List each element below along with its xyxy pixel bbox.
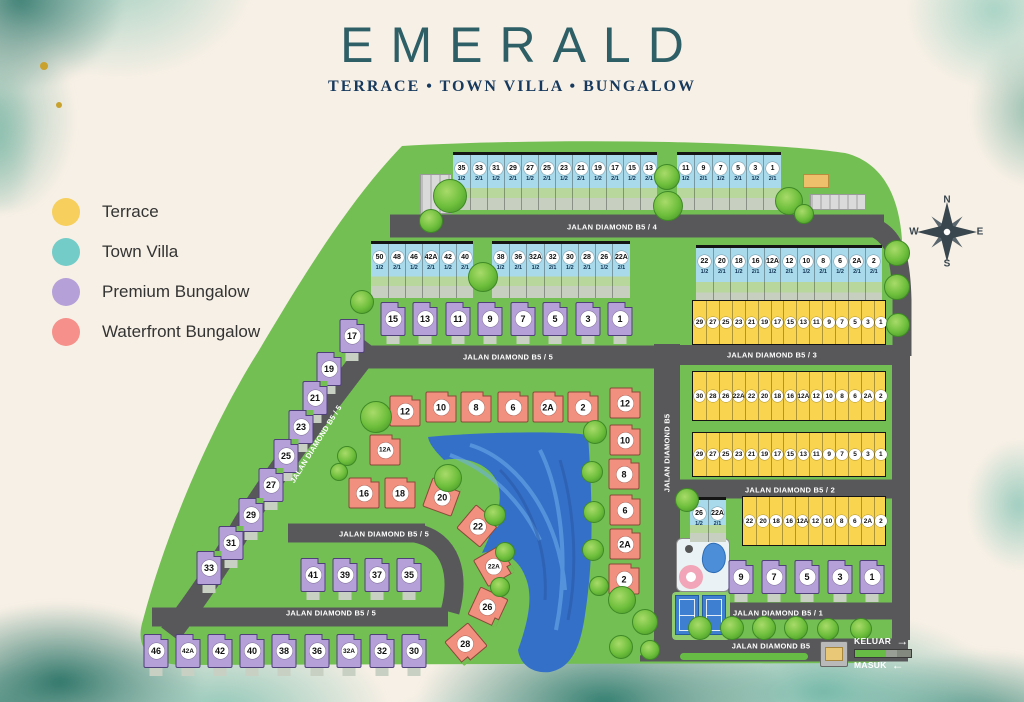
lot-number-badge: 19 [759,449,771,461]
lot-6[interactable]: 6 [848,497,861,545]
lot-16[interactable]: 162/1 [747,248,764,305]
lot-18[interactable]: 181/2 [730,248,747,305]
compass-west: W [909,227,918,238]
lot-38[interactable]: 38 [272,634,297,668]
lot-39[interactable]: 39 [333,558,358,592]
lot-9[interactable]: 9 [478,302,503,336]
roof-notch [411,395,421,401]
lot-3[interactable]: 31/2 [746,155,763,210]
lot-number-badge: 22A [733,390,745,402]
lot-36[interactable]: 362/1 [509,244,526,298]
lot-22A[interactable]: 22A2/1 [708,500,726,542]
lot-type-label: 1/2 [497,265,505,271]
lot-5[interactable]: 5 [848,433,861,476]
driveway [402,592,416,600]
lot-31[interactable]: 311/2 [487,155,504,210]
lot-9[interactable]: 9 [822,433,835,476]
lot-number-badge: 32 [374,643,390,659]
lot-11[interactable]: 11 [809,433,822,476]
lot-21[interactable]: 212/1 [572,155,589,210]
lot-number-badge: 33 [473,162,486,175]
lot-22[interactable]: 22 [745,372,758,420]
lot-type-label: 1/2 [526,176,534,182]
tree-icon [495,542,515,562]
lot-6[interactable]: 6 [610,495,641,526]
lot-number-badge: 10 [800,255,813,268]
lot-8[interactable]: 8 [461,392,492,423]
compass-east: E [977,227,984,238]
lot-26[interactable]: 26 [719,372,732,420]
lot-12[interactable]: 12 [610,388,641,419]
lot-number-badge: 2A [850,255,863,268]
lot-3[interactable]: 3 [576,302,601,336]
lot-number-badge: 12 [810,515,822,527]
lot-12[interactable]: 12 [809,372,822,420]
legend-color-dot [52,238,80,266]
lot-1[interactable]: 1 [860,560,885,594]
lot-7[interactable]: 71/2 [712,155,729,210]
lot-50[interactable]: 501/2 [371,244,388,298]
roof-notch [506,563,516,574]
tree-icon [581,461,603,483]
driveway [386,336,400,344]
lot-number-badge: 12A [766,255,779,268]
lot-number-badge: 10 [823,515,835,527]
lot-42[interactable]: 421/2 [439,244,456,298]
lot-number-badge: 35 [401,567,417,583]
lot-18[interactable]: 18 [771,372,784,420]
lot-number-badge: 10 [823,390,835,402]
lot-number-badge: 35 [455,162,468,175]
lot-22A[interactable]: 22A [732,372,745,420]
lot-28[interactable]: 282/1 [578,244,595,298]
roof-notch [193,634,201,640]
lot-number-badge: 5 [547,311,563,327]
lot-33[interactable]: 33 [197,551,222,585]
lot-6[interactable]: 61/2 [831,248,848,305]
lot-17[interactable]: 17 [771,433,784,476]
lot-number-badge: 20 [757,515,769,527]
lot-number-badge: 46 [148,643,164,659]
lot-2[interactable]: 22/1 [865,248,882,305]
lot-17[interactable]: 172/1 [606,155,623,210]
lot-30[interactable]: 30 [402,634,427,668]
driveway [245,668,259,676]
lot-16[interactable]: 16 [782,497,795,545]
lot-8[interactable]: 8 [835,497,848,545]
roof-notch [528,302,536,308]
terrace-row-4: 2220181612A1210862A2 [742,496,886,546]
lot-1[interactable]: 1 [874,301,887,344]
lot-5[interactable]: 52/1 [729,155,746,210]
lot-17[interactable]: 17 [771,301,784,344]
lot-25[interactable]: 25 [719,433,732,476]
tree-icon [583,420,607,444]
roof-notch [631,387,641,393]
tree-icon [608,586,636,614]
street-label: JALAN DIAMOND B5 / 4 [567,223,657,232]
lot-46[interactable]: 46 [144,634,169,668]
lot-number-badge: 16 [749,255,762,268]
lot-29[interactable]: 29 [693,301,706,344]
lot-type-label: 2/1 [583,265,591,271]
lot-number-badge: 29 [243,507,259,523]
lot-number-badge: 5 [849,449,861,461]
lot-3[interactable]: 3 [861,433,874,476]
tree-icon [675,488,699,512]
driveway [338,592,352,600]
lot-7[interactable]: 7 [835,433,848,476]
lot-type-label: 1/2 [628,176,636,182]
lot-12A[interactable]: 12A1/2 [764,248,781,305]
lot-number-badge: 12 [783,255,796,268]
lot-number-badge: 2 [875,390,887,402]
roof-notch [387,634,395,640]
lot-9[interactable]: 9 [822,301,835,344]
lot-number-badge: 8 [836,515,848,527]
compass-rose: N E S W [909,194,985,270]
lot-7[interactable]: 7 [835,301,848,344]
lot-37[interactable]: 37 [365,558,390,592]
lot-number-badge: 16 [356,485,372,501]
lot-type-label: 1/2 [566,265,574,271]
lot-10[interactable]: 10 [822,372,835,420]
lot-number-badge: 7 [766,569,782,585]
lot-13[interactable]: 13 [413,302,438,336]
lot-42A[interactable]: 42A [176,634,201,668]
lot-number-badge: 9 [733,569,749,585]
lot-23[interactable]: 231/2 [555,155,572,210]
driveway [865,594,879,602]
lot-2A[interactable]: 2A [861,497,874,545]
roof-notch [214,551,222,557]
lot-15[interactable]: 151/2 [623,155,640,210]
lot-25[interactable]: 25 [719,301,732,344]
lot-9[interactable]: 9 [729,560,754,594]
lot-number-badge: 41 [305,567,321,583]
lot-6[interactable]: 6 [498,392,529,423]
lot-28[interactable]: 28 [444,622,488,666]
lot-number-badge: 15 [785,317,797,329]
roof-notch [463,302,471,308]
lot-20[interactable]: 20 [756,497,769,545]
lot-number-badge: 12A [798,390,810,402]
lot-21[interactable]: 21 [745,433,758,476]
lot-7[interactable]: 7 [511,302,536,336]
lot-19[interactable]: 19 [758,433,771,476]
lot-number-badge: 30 [694,390,706,402]
lot-9[interactable]: 92/1 [694,155,711,210]
lot-12A[interactable]: 12A [795,497,808,545]
roof-notch [291,439,299,445]
tree-icon [609,635,633,659]
lot-number-badge: 25 [720,449,732,461]
lot-21[interactable]: 21 [745,301,758,344]
lot-12[interactable]: 12 [390,396,421,427]
lot-8[interactable]: 82/1 [814,248,831,305]
lot-8[interactable]: 8 [835,372,848,420]
lot-19[interactable]: 191/2 [589,155,606,210]
lot-number-badge: 48 [391,251,404,264]
lot-22A[interactable]: 22A2/1 [612,244,629,298]
roof-notch [779,560,787,566]
driveway [800,594,814,602]
lot-2A[interactable]: 2A [610,529,641,560]
lot-number-badge: 36 [309,643,325,659]
lot-32[interactable]: 322/1 [544,244,561,298]
lot-23[interactable]: 23 [732,433,745,476]
lot-3[interactable]: 3 [861,301,874,344]
lot-27[interactable]: 27 [706,433,719,476]
lot-22[interactable]: 22 [743,497,756,545]
lot-type-label: 2/1 [543,176,551,182]
roof-notch [460,656,471,667]
legend-label: Terrace [102,202,159,222]
tree-icon [886,313,910,337]
roof-notch [812,560,820,566]
lot-number-badge: 27 [707,317,719,329]
lot-20[interactable]: 202/1 [713,248,730,305]
lot-type-label: 1/2 [802,269,810,275]
lot-number-badge: 25 [278,448,294,464]
tree-icon [350,290,374,314]
lot-type-label: 2/1 [461,265,469,271]
lot-48[interactable]: 482/1 [388,244,405,298]
lot-15[interactable]: 15 [381,302,406,336]
exit-label: KELUAR → [854,636,909,646]
lot-number-badge: 3 [749,162,762,175]
lot-type-label: 2/1 [786,269,794,275]
lot-number-badge: 15 [385,311,401,327]
lot-number-badge: 6 [617,502,633,518]
lot-2[interactable]: 2 [568,392,599,423]
tree-icon [817,618,839,640]
lot-number-badge: 40 [244,643,260,659]
lot-1[interactable]: 1 [874,433,887,476]
lot-18[interactable]: 18 [385,478,416,509]
driveway [277,668,291,676]
lot-type-label: 1/2 [444,265,452,271]
lot-42[interactable]: 42 [208,634,233,668]
lot-type-label: 2/1 [700,176,708,182]
roof-notch [398,302,406,308]
lot-number-badge: 39 [337,567,353,583]
lot-number-badge: 1 [875,317,887,329]
lot-15[interactable]: 15 [783,433,796,476]
lot-7[interactable]: 7 [762,560,787,594]
lot-number-badge: 36 [512,251,525,264]
lot-40[interactable]: 40 [240,634,265,668]
lot-number-badge: 2 [575,399,591,415]
roof-notch [256,498,264,504]
lot-18[interactable]: 18 [769,497,782,545]
lot-31[interactable]: 31 [219,526,244,560]
exit-text: KELUAR [854,636,891,646]
compass-north: N [943,195,950,206]
roof-notch [406,477,416,483]
entrance-arrow-icon: ← [892,661,904,669]
driveway [833,594,847,602]
roof-notch [225,634,233,640]
driveway [407,668,421,676]
lot-number-badge: 50 [373,251,386,264]
lot-28[interactable]: 28 [706,372,719,420]
terrace-row-2: 30282622A2220181612A1210862A2 [692,371,886,421]
street-label: JALAN DIAMOND B5 / 5 [339,530,429,539]
lot-11[interactable]: 11 [446,302,471,336]
lot-number-badge: 28 [458,636,474,652]
lot-number-badge: 15 [626,162,639,175]
lot-13[interactable]: 13 [796,433,809,476]
lot-number-badge: 28 [581,251,594,264]
lot-number-badge: 23 [733,317,745,329]
roof-notch [746,560,754,566]
lot-type-label: 1/2 [560,176,568,182]
lot-10[interactable]: 101/2 [797,248,814,305]
street-label: JALAN DIAMOND B5 [663,414,672,493]
lot-number-badge: 26 [598,251,611,264]
lot-42A[interactable]: 42A2/1 [422,244,439,298]
lot-20[interactable]: 20 [758,372,771,420]
lot-27[interactable]: 271/2 [521,155,538,210]
lot-2A[interactable]: 2A [533,392,564,423]
lot-2[interactable]: 2 [874,372,887,420]
lot-27[interactable]: 27 [706,301,719,344]
lot-type-label: 2/1 [509,176,517,182]
roof-notch [276,468,284,474]
driveway [734,594,748,602]
lot-17[interactable]: 17 [340,319,365,353]
roof-notch [370,477,380,483]
lot-3[interactable]: 3 [828,560,853,594]
lot-15[interactable]: 15 [783,301,796,344]
legend-color-dot [52,278,80,306]
tree-icon [484,504,506,526]
lot-number-badge: 22 [746,390,758,402]
lot-32A[interactable]: 32A [337,634,362,668]
lot-11[interactable]: 11 [809,301,822,344]
lot-41[interactable]: 41 [301,558,326,592]
tree-icon [468,262,498,292]
tree-icon [490,577,510,597]
lot-29[interactable]: 292/1 [504,155,521,210]
lot-16[interactable]: 16 [349,478,380,509]
lot-number-badge: 3 [862,449,874,461]
lot-number-badge: 13 [798,449,810,461]
lot-35[interactable]: 35 [397,558,422,592]
lot-32[interactable]: 32 [370,634,395,668]
lot-12[interactable]: 12 [808,497,821,545]
lot-23[interactable]: 23 [732,301,745,344]
lot-10[interactable]: 10 [610,425,641,456]
lot-type-label: 2/1 [870,269,878,275]
lot-33[interactable]: 332/1 [470,155,487,210]
lot-13[interactable]: 13 [796,301,809,344]
lot-number-badge: 9 [697,162,710,175]
lot-number-badge: 10 [433,399,449,415]
lot-type-label: 2/1 [714,521,722,527]
lot-30[interactable]: 30 [693,372,706,420]
lot-number-badge: 25 [541,162,554,175]
lot-2[interactable]: 2 [874,497,887,545]
legend-item: Premium Bungalow [52,272,260,312]
lot-type-label: 1/2 [594,176,602,182]
lot-number-badge: 26 [480,599,496,615]
lot-type-label: 1/2 [735,269,743,275]
lot-8[interactable]: 8 [609,459,640,490]
lot-number-badge: 17 [344,328,360,344]
lot-type-label: 1/2 [752,176,760,182]
lot-number-badge: 32A [529,251,542,264]
lot-5[interactable]: 5 [848,301,861,344]
lot-number-badge: 22 [470,518,486,534]
lot-32A[interactable]: 32A1/2 [526,244,543,298]
tree-icon [653,191,683,221]
legend-color-dot [52,198,80,226]
lot-12A[interactable]: 12A [796,372,809,420]
lot-5[interactable]: 5 [543,302,568,336]
tree-icon [884,274,910,300]
lot-10[interactable]: 10 [426,392,457,423]
lot-number-badge: 2A [617,536,633,552]
lot-22[interactable]: 221/2 [696,248,713,305]
lot-number-badge: 19 [592,162,605,175]
driveway [202,585,216,593]
roof-notch [845,560,853,566]
driveway [264,502,278,510]
lot-type-label: 2/1 [611,176,619,182]
terrace-row-1: 2927252321191715131197531 [692,300,886,345]
lot-16[interactable]: 16 [783,372,796,420]
lot-2A[interactable]: 2A2/1 [848,248,865,305]
lot-30[interactable]: 301/2 [561,244,578,298]
lot-number-badge: 11 [450,311,466,327]
lot-12A[interactable]: 12A [370,435,401,466]
tree-icon [884,240,910,266]
lot-10[interactable]: 10 [822,497,835,545]
lot-number-badge: 2 [875,515,887,527]
lot-1[interactable]: 1 [608,302,633,336]
lot-29[interactable]: 29 [693,433,706,476]
lot-26[interactable]: 261/2 [595,244,612,298]
lot-5[interactable]: 5 [795,560,820,594]
lot-number-badge: 18 [732,255,745,268]
lot-6[interactable]: 6 [848,372,861,420]
lot-12[interactable]: 122/1 [780,248,797,305]
lot-46[interactable]: 461/2 [405,244,422,298]
lot-number-badge: 27 [524,162,537,175]
lot-type-label: 1/2 [410,265,418,271]
lot-number-badge: 42 [212,643,228,659]
lot-type-label: 2/1 [752,269,760,275]
lot-25[interactable]: 252/1 [538,155,555,210]
lot-number-badge: 7 [714,162,727,175]
lot-19[interactable]: 19 [758,301,771,344]
lot-36[interactable]: 36 [305,634,330,668]
lot-type-label: 1/2 [836,269,844,275]
lot-type-label: 2/1 [475,176,483,182]
tree-icon [582,539,604,561]
lot-2A[interactable]: 2A [861,372,874,420]
driveway [244,532,258,540]
lot-number-badge: 29 [694,449,706,461]
lot-number-badge: 3 [832,569,848,585]
lot-number-badge: 33 [201,560,217,576]
lot-type-label: 1/2 [376,265,384,271]
driveway [342,668,356,676]
lot-number-badge: 22 [744,515,756,527]
lot-number-badge: 8 [616,466,632,482]
